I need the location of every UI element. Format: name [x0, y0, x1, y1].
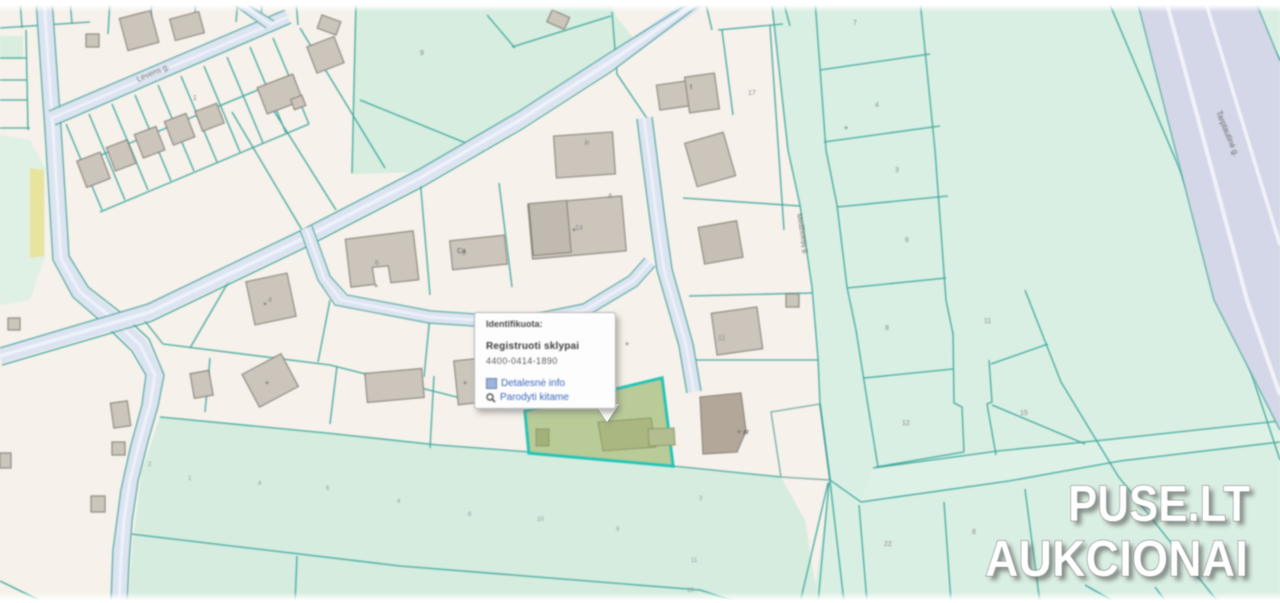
- svg-text:AUKCIONAI: AUKCIONAI: [985, 530, 1248, 587]
- svg-text:PUSE.LT: PUSE.LT: [1068, 475, 1250, 532]
